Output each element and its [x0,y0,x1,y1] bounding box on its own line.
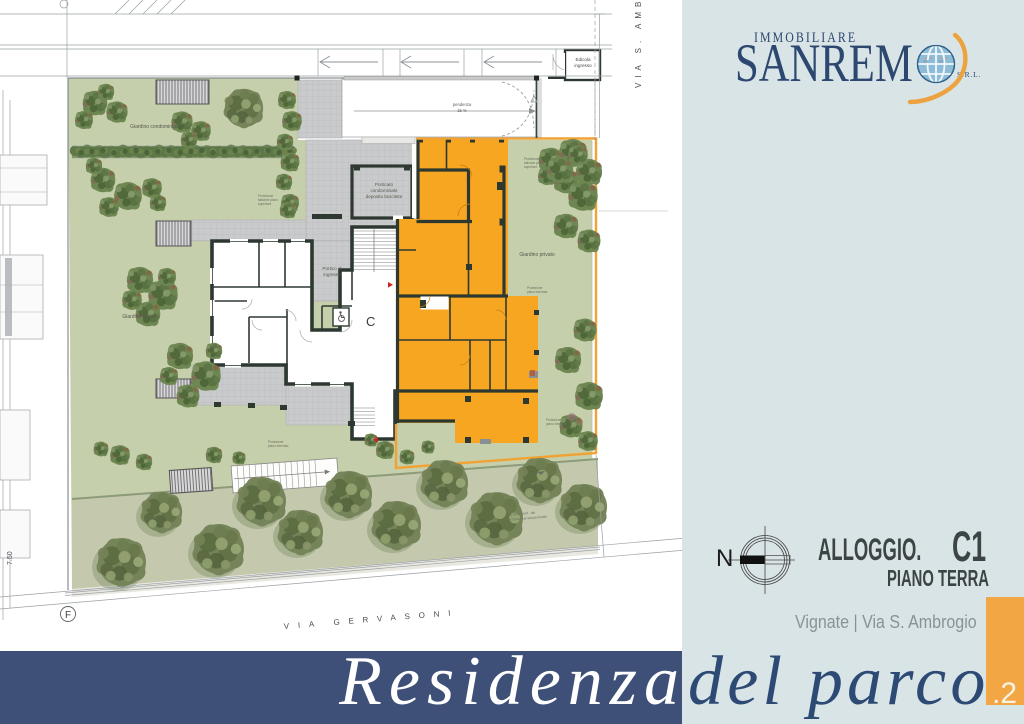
svg-text:7.50: 7.50 [7,551,14,565]
svg-text:piano interrato: piano interrato [527,290,548,294]
svg-text:Portico di: Portico di [322,266,341,271]
svg-text:Edicola: Edicola [575,57,591,62]
svg-text:superiore: superiore [524,165,538,169]
svg-text:Porticato: Porticato [375,182,394,187]
svg-text:superiore: superiore [258,202,272,206]
svg-text:F: F [65,610,71,621]
svg-text:piano interrato: piano interrato [268,444,289,448]
svg-text:VIA GERVASONI: VIA GERVASONI [283,608,459,631]
svg-text:ingresso: ingresso [323,272,341,277]
svg-text:condominiale: condominiale [370,188,398,193]
svg-text:ingresso: ingresso [574,63,592,68]
svg-text:pendenza: pendenza [453,102,472,107]
svg-text:C: C [366,314,375,329]
svg-text:Giardino privato: Giardino privato [122,314,158,320]
svg-text:Giardino privato: Giardino privato [519,252,555,258]
svg-text:deposito biciclette: deposito biciclette [366,194,403,199]
svg-text:Giardino condominiale: Giardino condominiale [130,124,180,130]
svg-text:VIA S. AMBROGIO: VIA S. AMBROGIO [634,0,643,88]
svg-text:15 %: 15 % [457,108,467,113]
svg-text:piano interrato: piano interrato [546,422,567,426]
